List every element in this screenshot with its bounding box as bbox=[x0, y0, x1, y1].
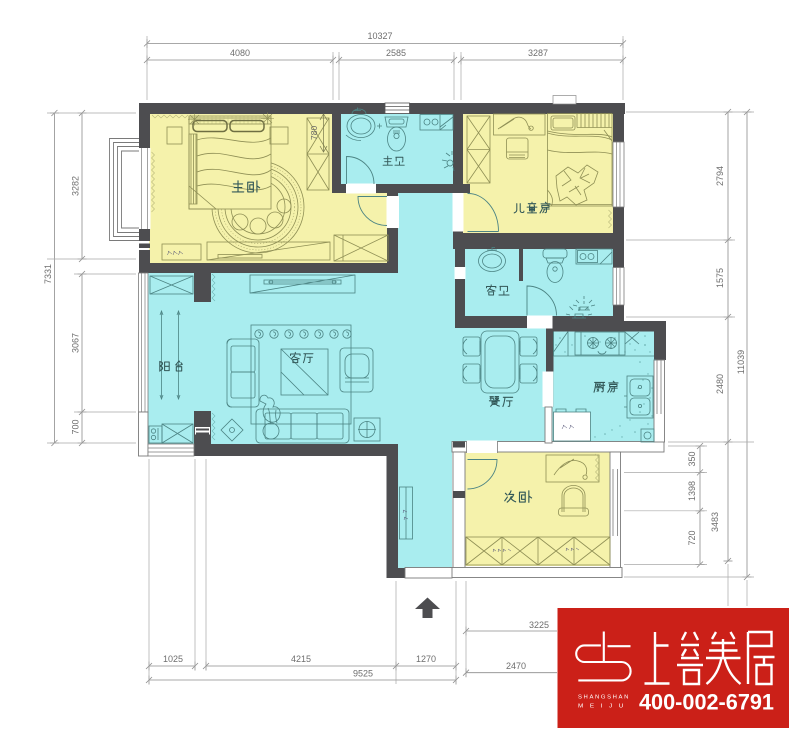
svg-text:11039: 11039 bbox=[736, 350, 746, 374]
svg-text:10327: 10327 bbox=[367, 31, 392, 41]
svg-text:MEIJU: MEIJU bbox=[578, 704, 630, 710]
svg-text:3282: 3282 bbox=[71, 176, 81, 196]
svg-text:7331: 7331 bbox=[43, 264, 53, 284]
svg-text:700: 700 bbox=[71, 419, 81, 434]
svg-text:2585: 2585 bbox=[386, 48, 406, 58]
svg-text:SHANGSHAN: SHANGSHAN bbox=[578, 695, 630, 701]
svg-text:400-002-6791: 400-002-6791 bbox=[639, 690, 774, 715]
svg-text:2470: 2470 bbox=[506, 661, 526, 671]
svg-text:4215: 4215 bbox=[291, 654, 311, 664]
svg-text:1398: 1398 bbox=[687, 481, 697, 501]
svg-text:3483: 3483 bbox=[710, 512, 720, 532]
svg-text:4080: 4080 bbox=[230, 48, 250, 58]
svg-text:1575: 1575 bbox=[715, 268, 725, 288]
svg-text:3287: 3287 bbox=[528, 48, 548, 58]
svg-text:2480: 2480 bbox=[715, 374, 725, 394]
svg-text:1270: 1270 bbox=[416, 654, 436, 664]
svg-text:1025: 1025 bbox=[163, 654, 183, 664]
svg-text:9525: 9525 bbox=[353, 669, 373, 679]
svg-text:3067: 3067 bbox=[71, 333, 81, 353]
svg-text:2794: 2794 bbox=[715, 166, 725, 186]
svg-text:3225: 3225 bbox=[529, 620, 549, 630]
svg-text:350: 350 bbox=[687, 451, 697, 466]
svg-text:720: 720 bbox=[687, 530, 697, 545]
svg-text:780: 780 bbox=[309, 126, 319, 140]
